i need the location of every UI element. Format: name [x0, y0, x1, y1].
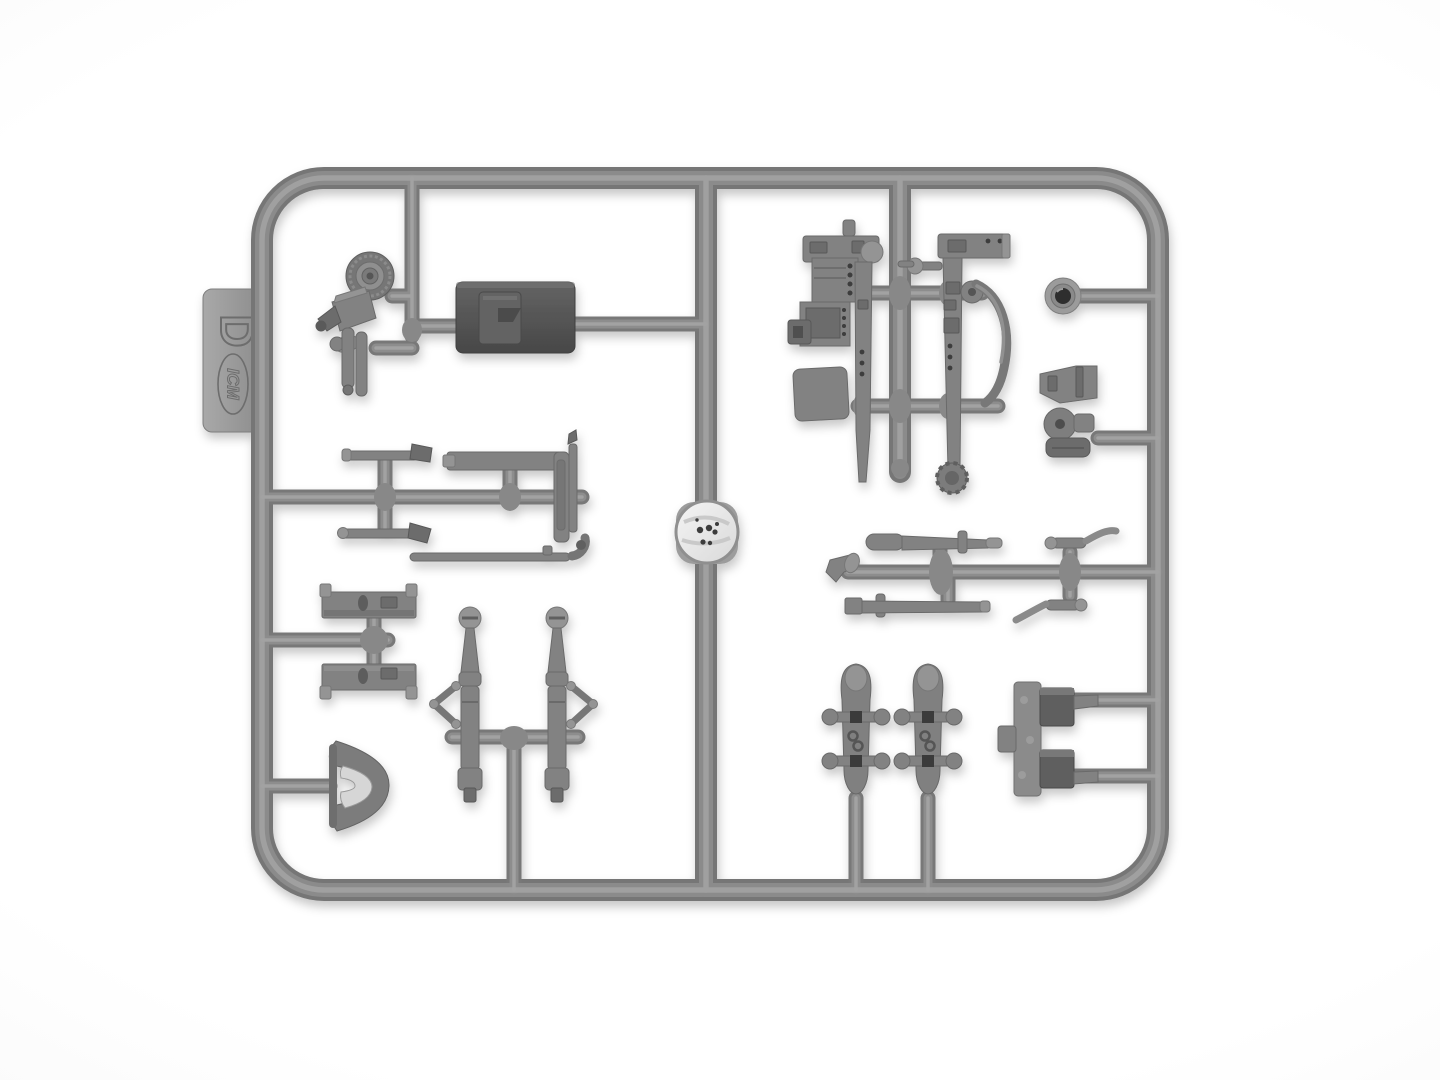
photo-background: D ICM — [0, 0, 1440, 1080]
part-crank-upper — [1045, 531, 1116, 549]
part-searchlight-pump — [316, 287, 377, 396]
part-bogie-right — [894, 664, 962, 794]
part-ammo-boxes — [788, 258, 858, 421]
part-recoil-cylinder-right — [545, 607, 598, 802]
part-lens-light — [1045, 278, 1081, 314]
part-barrel-lower — [845, 594, 990, 617]
part-roller-foot — [937, 463, 967, 493]
part-recoil-cylinder-left — [430, 607, 483, 802]
part-u-bracket — [998, 682, 1098, 796]
part-gun-cradle — [1040, 366, 1097, 457]
part-bogie-left — [822, 664, 890, 794]
part-steering-wheel-disc — [676, 501, 738, 564]
sprue-photo: D ICM — [0, 0, 1440, 1080]
part-mg-mount-left — [788, 220, 883, 482]
part-crescent-fender — [329, 741, 389, 831]
brand-logo-text: ICM — [224, 368, 243, 400]
part-barrel-upper — [866, 531, 1002, 553]
part-footboard-lower — [320, 664, 417, 699]
part-footboard-upper — [320, 584, 417, 618]
part-crank-lower — [1016, 599, 1087, 620]
part-tool-rod-upper — [342, 444, 432, 462]
part-mg-mount-right — [898, 234, 1010, 493]
part-stowage-box — [456, 282, 575, 353]
